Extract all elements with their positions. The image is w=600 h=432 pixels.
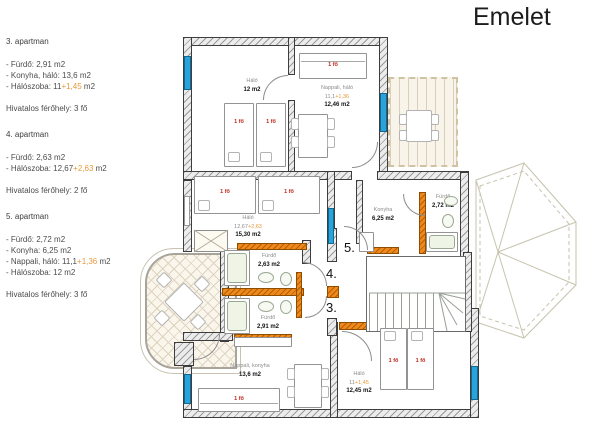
room-label-konyha-5: Konyha 6,25 m2 [360,206,406,224]
chair [291,136,299,148]
new-wall [327,286,339,298]
room-calc: 11,1+1,36 [325,94,349,100]
wall [460,172,469,262]
deck-table [406,110,432,142]
occupant-label: 1 fő [224,119,254,125]
entry-label-4: 4. [326,266,337,281]
shower-tray [227,253,247,283]
room-area: 6,25 m2 [360,215,406,224]
room-name: Konyha [374,207,393,213]
stair-fan [367,257,467,333]
window [471,366,478,400]
roof-outline [468,148,593,343]
door-arc [305,296,327,318]
chair [321,386,329,398]
wall [174,342,194,366]
room-name: Fürdő [261,315,275,321]
washbasin [258,301,274,312]
bed-pillow [262,200,274,211]
bed-pillow [260,152,272,162]
occupant-label: 1 fő [299,62,367,68]
chair [291,118,299,130]
room-area: 12,46 m2 [303,101,371,110]
occupant-label: 1 fő [256,119,286,125]
deck-chair [431,114,439,125]
room-area: 13,6 m2 [205,371,295,380]
shower-tray [429,235,455,249]
room-label-furdo-4: Fürdő 2,63 m2 [246,252,292,270]
deck-chair [399,114,407,125]
bed-pillow [411,331,423,341]
room-area: 2,72 m2 [422,202,464,211]
room-area: 15,30 m2 [216,231,280,240]
bed-pillow [198,200,210,211]
room-name: Háló [353,371,364,377]
new-wall [222,288,304,296]
room-area: 2,91 m2 [244,323,292,332]
window [184,196,190,226]
room-name: Fürdő [262,253,276,259]
wall [327,318,337,336]
door-arc [403,194,425,216]
wall [288,37,295,75]
room-calc: 11+1,45 [349,380,369,386]
toilet [280,300,292,314]
washbasin [444,196,458,206]
door-arc [342,331,372,361]
chair [287,368,295,380]
room-calc-extra: +1,45 [355,380,369,386]
wall [183,37,388,46]
room-calc-base: 12,67 [234,224,248,230]
room-label-halo-mid: Háló 12,67+2,63 15,30 m2 [216,214,280,240]
deck-chair [431,130,439,141]
toilet [442,214,454,228]
deck-chair [399,130,407,141]
new-wall [237,243,307,250]
room-name: Háló [242,215,253,221]
entry-label-3: 3. [326,300,337,315]
kitchen-counter [234,337,292,347]
occupant-label: 1 fő [198,396,280,402]
toilet [280,272,292,286]
chair [327,118,335,130]
floor-plan: Háló 12 m2 1 fő 1 fő 1 fő Nappali, háló … [0,0,600,432]
window [184,374,191,404]
window [380,93,387,132]
wall [377,171,469,180]
table [298,114,328,158]
room-name: Nappali, háló [321,85,353,91]
window [184,56,191,90]
window [328,208,334,244]
room-calc: 12,67+2,63 [234,224,262,230]
room-calc-extra: +2,63 [248,224,262,230]
room-label-halo-bottom: Háló 11+1,45 12,45 m2 [336,370,382,396]
door-arc [303,262,327,286]
room-label-nappali-halo: Nappali, háló 11,1+1,36 12,46 m2 [303,84,371,110]
room-label-furdo-3: Fürdő 2,91 m2 [244,314,292,332]
door-arc [344,226,368,250]
bed-pillow [228,152,240,162]
washbasin [258,272,274,283]
bed-pillow [384,331,396,341]
room-area: 12,45 m2 [336,387,382,396]
door-arc [352,142,378,168]
room-calc-base: 11,1 [325,94,335,100]
room-area: 2,63 m2 [246,261,292,270]
table [294,364,322,408]
occupant-label: 1 fő [407,358,434,364]
occupant-label: 1 fő [258,189,320,195]
occupant-label: 1 fő [194,189,256,195]
occupant-label: 1 fő [380,358,407,364]
room-label-nappali-konyha: Nappali, konyha 13,6 m2 [205,362,295,380]
room-name: Háló [246,78,257,84]
chair [287,386,295,398]
chair [321,368,329,380]
chair [327,136,335,148]
room-calc-extra: +1,36 [335,94,349,100]
room-name: Nappali, konyha [230,363,269,369]
stairs [366,256,466,332]
new-wall [296,272,302,318]
